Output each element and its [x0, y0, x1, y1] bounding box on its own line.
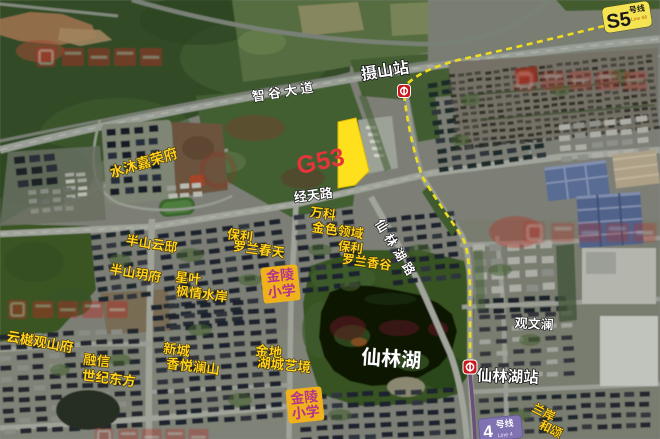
svg-text:S5: S5	[605, 8, 633, 34]
svg-text:Line 4: Line 4	[498, 432, 514, 439]
